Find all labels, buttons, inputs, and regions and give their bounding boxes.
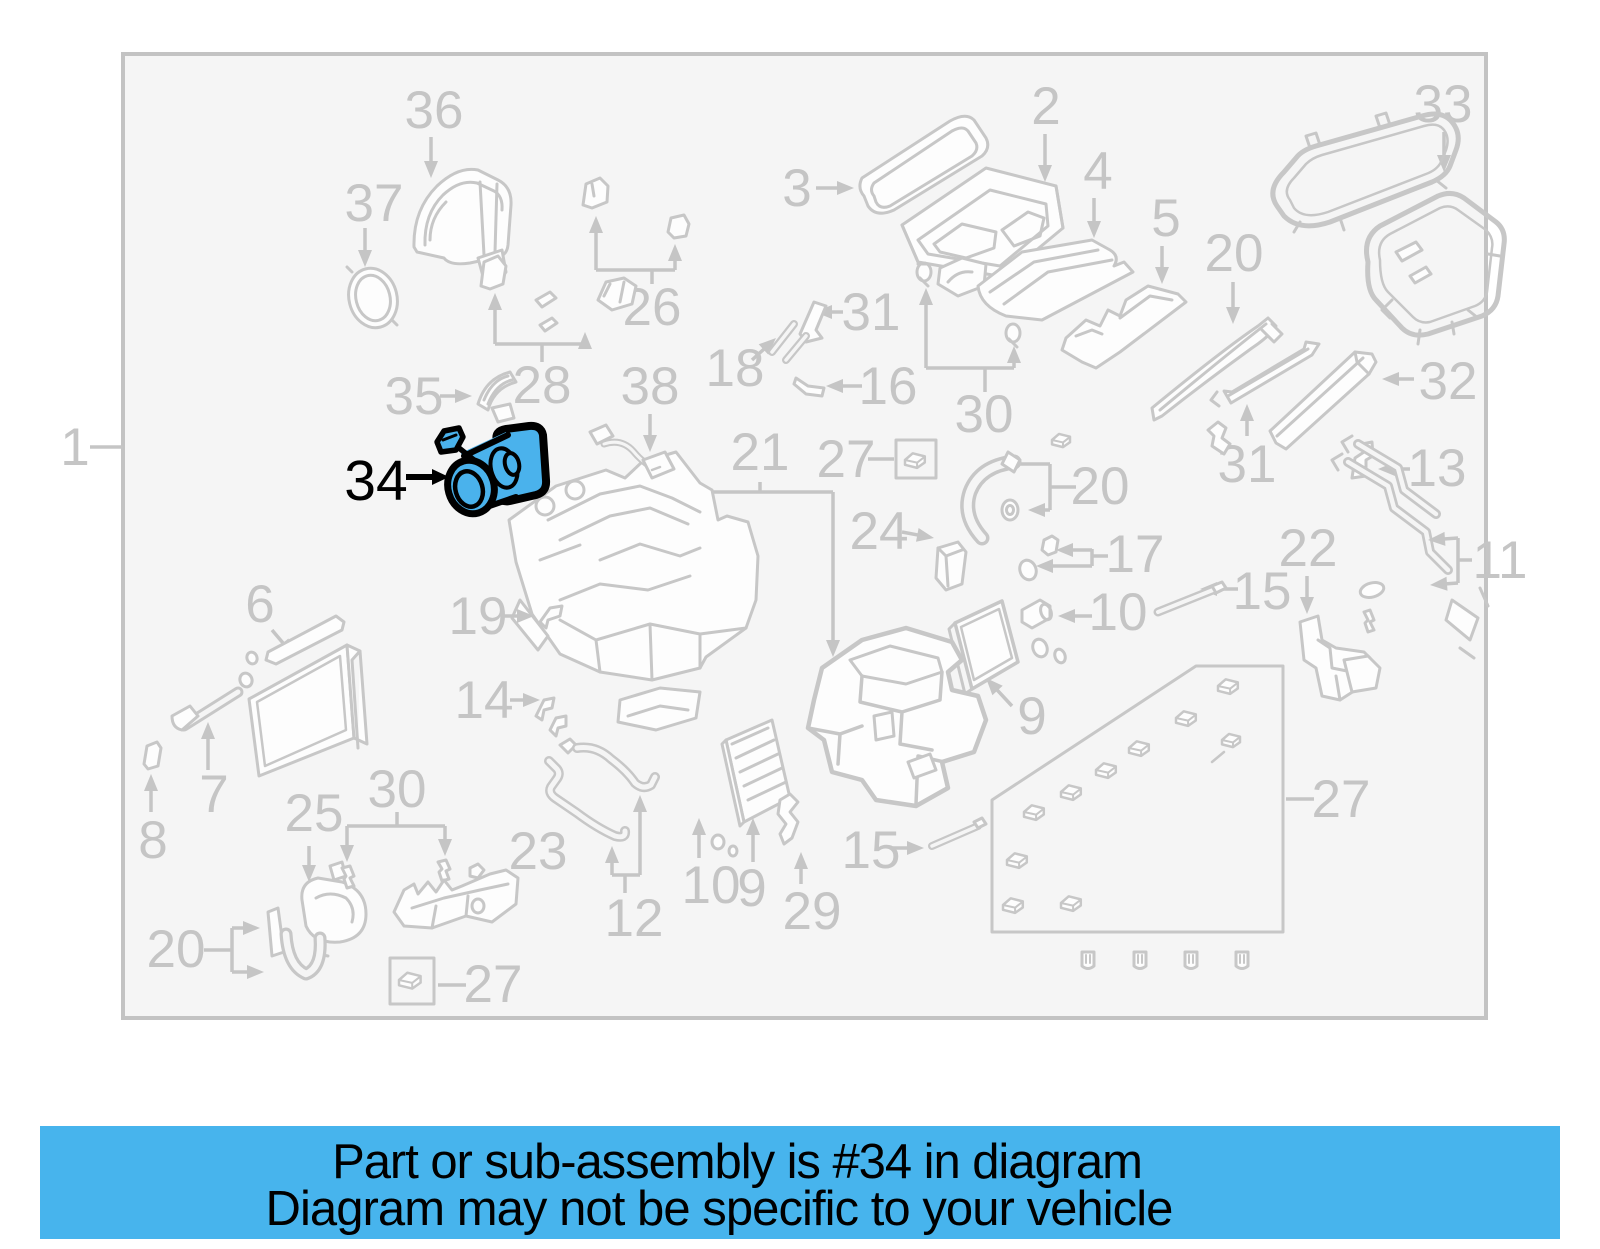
svg-text:7: 7 <box>199 765 228 824</box>
svg-text:13: 13 <box>1408 439 1467 498</box>
svg-text:33: 33 <box>1414 75 1473 134</box>
svg-text:8: 8 <box>138 811 167 870</box>
svg-text:2: 2 <box>1031 77 1060 136</box>
svg-text:1: 1 <box>60 418 89 477</box>
svg-text:20: 20 <box>147 920 206 979</box>
svg-text:3: 3 <box>782 159 811 218</box>
svg-text:27: 27 <box>464 955 523 1014</box>
svg-text:11: 11 <box>1472 531 1527 590</box>
svg-text:35: 35 <box>385 367 444 426</box>
svg-text:30: 30 <box>955 385 1014 444</box>
svg-text:21: 21 <box>731 423 790 482</box>
svg-text:Diagram may not be specific to: Diagram may not be specific to your vehi… <box>266 1182 1173 1236</box>
svg-text:25: 25 <box>285 784 344 843</box>
svg-text:24: 24 <box>850 502 909 561</box>
svg-text:20: 20 <box>1205 224 1264 283</box>
svg-text:15: 15 <box>1233 562 1292 621</box>
svg-text:12: 12 <box>605 889 664 948</box>
svg-text:20: 20 <box>1071 457 1130 516</box>
svg-text:9: 9 <box>737 859 766 918</box>
svg-text:16: 16 <box>859 357 918 416</box>
svg-text:28: 28 <box>513 356 572 415</box>
svg-text:36: 36 <box>405 81 464 140</box>
svg-text:4: 4 <box>1083 142 1112 201</box>
svg-text:27: 27 <box>817 430 876 489</box>
svg-text:32: 32 <box>1419 352 1478 411</box>
svg-text:17: 17 <box>1106 525 1165 584</box>
svg-text:31: 31 <box>842 283 901 342</box>
svg-text:23: 23 <box>509 822 568 881</box>
svg-text:10: 10 <box>1089 583 1148 642</box>
svg-text:9: 9 <box>1017 687 1046 746</box>
svg-text:10: 10 <box>682 856 741 915</box>
svg-text:Part or sub-assembly is #34 in: Part or sub-assembly is #34 in diagram <box>332 1135 1142 1189</box>
svg-text:29: 29 <box>783 882 842 941</box>
svg-text:27: 27 <box>1312 770 1371 829</box>
svg-text:15: 15 <box>842 821 901 880</box>
svg-text:6: 6 <box>245 575 274 634</box>
svg-text:34: 34 <box>344 449 407 513</box>
svg-text:30: 30 <box>368 760 427 819</box>
svg-text:37: 37 <box>345 174 404 233</box>
svg-text:19: 19 <box>449 587 508 646</box>
svg-text:14: 14 <box>455 671 514 730</box>
svg-text:18: 18 <box>706 339 765 398</box>
svg-text:38: 38 <box>621 357 680 416</box>
svg-text:5: 5 <box>1151 189 1180 248</box>
